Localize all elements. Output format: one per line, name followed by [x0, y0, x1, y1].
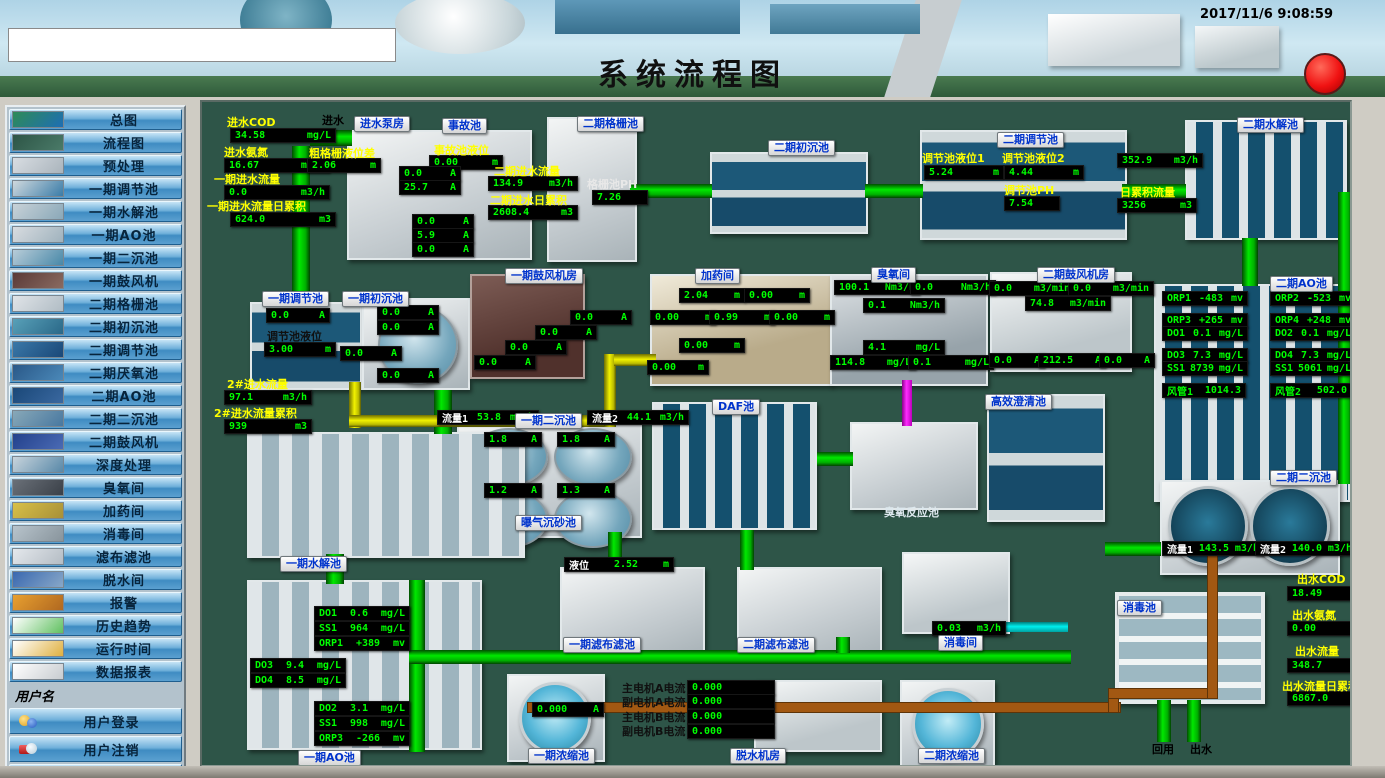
sidebar-item-thumbnail	[12, 525, 64, 542]
sidebar-item-20[interactable]: 滤布滤池	[9, 546, 182, 567]
sidebar-item-thumbnail	[12, 410, 64, 427]
value-display: 0.0A	[474, 355, 536, 370]
sidebar-item-label: 一期鼓风机	[67, 271, 181, 290]
sidebar-item-24[interactable]: 运行时间	[9, 638, 182, 659]
value-display: 0.0A	[570, 310, 632, 325]
value-display: 0.000	[687, 709, 775, 724]
value-display: 0.00m	[647, 360, 709, 375]
pipe-g	[865, 184, 923, 198]
metric-label: 2#进水流量	[227, 376, 288, 392]
metric-label: 一期进水流量日累积	[207, 198, 306, 214]
value-display: 0.0A	[377, 320, 439, 335]
unit-label-button[interactable]: 一期初沉池	[342, 291, 409, 307]
sidebar-item-label: 一期AO池	[67, 225, 181, 244]
value-display: 0.0m3/min	[1068, 281, 1154, 296]
value-display: 5.24m	[924, 165, 1004, 180]
sidebar-item-15[interactable]: 二期鼓风机	[9, 431, 182, 452]
sidebar-item-label: 加药间	[67, 501, 181, 520]
metric-label: 出水流量日累积	[1282, 678, 1352, 694]
text-label: 臭氧反应池	[884, 504, 939, 520]
unit-label-button[interactable]: 二期二沉池	[1270, 470, 1337, 486]
metric-label: 调节池PH	[1004, 182, 1054, 198]
value-display: 2.04m	[679, 288, 745, 303]
value-display: SS18739mg/L	[1162, 361, 1248, 376]
user-button-2[interactable]: 用户注销	[9, 736, 182, 762]
sidebar-item-17[interactable]: 臭氧间	[9, 477, 182, 498]
unit-label-button[interactable]: 臭氧间	[871, 267, 916, 283]
sidebar-item-label: 二期鼓风机	[67, 432, 181, 451]
sidebar-item-23[interactable]: 历史趋势	[9, 615, 182, 636]
value-display: 18.49mg/L	[1287, 586, 1352, 601]
unit-label-button[interactable]: 二期滤布滤池	[737, 637, 815, 653]
username-label: 用户名	[15, 686, 182, 705]
sidebar-item-3[interactable]: 预处理	[9, 155, 182, 176]
metric-label: 一期进水流量	[214, 171, 280, 187]
value-display: 风管11014.3	[1162, 383, 1246, 398]
value-display: 1.2A	[484, 483, 542, 498]
value-display: 212.5A	[1038, 353, 1106, 368]
metric-label: 粗格栅液位差	[309, 145, 375, 161]
value-display: DO39.4mg/L	[250, 658, 346, 673]
value-display: 0.00m	[769, 310, 835, 325]
sidebar-item-label: 历史趋势	[67, 616, 181, 635]
value-display: 4.44m	[1004, 165, 1084, 180]
equipment-building	[850, 422, 978, 510]
sidebar-item-25[interactable]: 数据报表	[9, 661, 182, 682]
sidebar-item-8[interactable]: 一期鼓风机	[9, 270, 182, 291]
sidebar-item-label: 报警	[67, 593, 181, 612]
pipe-o	[1108, 688, 1218, 699]
text-label: 调节池液位	[267, 328, 322, 344]
user-button-label: 用户注销	[42, 740, 181, 759]
unit-label-button[interactable]: 二期浓缩池	[918, 748, 985, 764]
sidebar-item-thumbnail	[12, 617, 64, 634]
value-display: 流量2140.0m3/h	[1255, 541, 1352, 556]
unit-label-button[interactable]: 二期调节池	[997, 132, 1064, 148]
sidebar-item-label: 数据报表	[67, 662, 181, 681]
text-label: 副电机B电流	[622, 723, 685, 739]
pipe-g	[836, 637, 850, 653]
value-display: 5.9A	[412, 228, 474, 243]
sidebar-item-thumbnail	[12, 594, 64, 611]
banner-building	[1048, 14, 1180, 66]
text-label: 出水	[1190, 741, 1212, 757]
metric-label: 调节池液位1	[922, 150, 985, 166]
value-display: 352.9m3/h	[1117, 153, 1203, 168]
sidebar-item-thumbnail	[12, 479, 64, 496]
value-display: SS1964mg/L	[314, 621, 410, 636]
value-display: 0.0Nm3/h	[910, 280, 996, 295]
value-display: 风管2502.0	[1270, 383, 1352, 398]
value-display: 0.99m	[709, 310, 775, 325]
metric-label: 日累积流量	[1120, 184, 1175, 200]
metric-label: 出水COD	[1297, 571, 1346, 587]
sidebar-item-19[interactable]: 消毒间	[9, 523, 182, 544]
sidebar-item-label: 二期二沉池	[67, 409, 181, 428]
sidebar-item-label: 二期厌氧池	[67, 363, 181, 382]
sidebar-item-thumbnail	[12, 663, 64, 680]
unit-label-button[interactable]: 一期滤布滤池	[563, 637, 641, 653]
pipe-o	[1207, 554, 1218, 699]
value-display: SS15061mg/L	[1270, 361, 1352, 376]
metric-label: 事故池液位	[434, 142, 489, 158]
sidebar-item-label: 二期调节池	[67, 340, 181, 359]
sidebar-item-label: 总图	[67, 110, 181, 129]
metric-label: 出水流量	[1295, 643, 1339, 659]
pipe-g	[1157, 700, 1171, 742]
value-display: 0.000	[687, 680, 775, 695]
metric-label: 2#进水流量累积	[214, 405, 297, 421]
value-display: 流量1143.5m3/h	[1162, 541, 1264, 556]
pipe-m	[902, 380, 912, 426]
value-display: 1.3A	[557, 483, 615, 498]
sidebar-item-thumbnail	[12, 433, 64, 450]
pipe-g	[409, 580, 425, 752]
value-display: 74.8m3/min	[1025, 296, 1111, 311]
value-display: 0.00m	[679, 338, 745, 353]
value-display: 97.1m3/h	[224, 390, 312, 405]
value-display: 0.0A	[399, 166, 461, 181]
value-display: DO48.5mg/L	[250, 673, 346, 688]
value-display: DO10.6mg/L	[314, 606, 410, 621]
value-display: ORP2-523mv	[1270, 291, 1352, 306]
sidebar-item-1[interactable]: 总图	[9, 109, 182, 130]
marquee-box	[8, 28, 396, 62]
sidebar-item-thumbnail	[12, 249, 64, 266]
sidebar-item-label: 脱水间	[67, 570, 181, 589]
unit-label-button[interactable]: 消毒池	[1117, 600, 1162, 616]
sidebar-item-thumbnail	[12, 295, 64, 312]
metric-label: 出水氨氮	[1292, 607, 1336, 623]
sidebar-item-label: 流程图	[67, 133, 181, 152]
pipe-g	[1105, 542, 1161, 556]
sidebar-item-11[interactable]: 二期调节池	[9, 339, 182, 360]
value-display: 0.000A	[532, 702, 604, 717]
value-display: 0.1mg/L	[908, 355, 994, 370]
unit-label-button[interactable]: 二期格栅池	[577, 116, 644, 132]
sidebar-item-label: 一期水解池	[67, 202, 181, 221]
user-button-1[interactable]: 用户登录	[9, 708, 182, 734]
sidebar-item-22[interactable]: 报警	[9, 592, 182, 613]
value-display: 0.03m3/h	[932, 621, 1006, 636]
unit-label-button[interactable]: 二期水解池	[1237, 117, 1304, 133]
value-display: 0.0A	[340, 346, 402, 361]
sidebar-item-label: 二期初沉池	[67, 317, 181, 336]
unit-label-button[interactable]: 曝气沉砂池	[515, 515, 582, 531]
value-display: 0.00mg/L	[1287, 621, 1352, 636]
unit-label-button[interactable]: 二期AO池	[1270, 276, 1333, 292]
banner-building	[1195, 26, 1279, 68]
value-display: DO20.1mg/L	[1270, 326, 1352, 341]
value-display: ORP1-483mv	[1162, 291, 1248, 306]
sidebar-item-thumbnail	[12, 548, 64, 565]
sidebar-item-thumbnail	[12, 157, 64, 174]
equipment-pool	[710, 152, 868, 234]
text-label: 副电机A电流	[622, 694, 686, 710]
sidebar-item-10[interactable]: 二期初沉池	[9, 316, 182, 337]
value-display: SS1998mg/L	[314, 716, 410, 731]
unit-label-button[interactable]: 脱水机房	[730, 748, 786, 764]
sidebar-item-thumbnail	[12, 456, 64, 473]
value-display: 0.00m	[744, 288, 810, 303]
value-display: 4.1mg/L	[863, 340, 945, 355]
value-display: ORP1+389mv	[314, 636, 410, 651]
unit-label-button[interactable]: 高效澄清池	[985, 394, 1052, 410]
user-login-icon	[18, 713, 38, 729]
scada-window: 系统流程图 2017/11/6 9:08:59 总图流程图预处理一期调节池一期水…	[0, 0, 1385, 778]
pipe-o	[527, 702, 1121, 713]
value-display: 1.8A	[557, 432, 615, 447]
value-display: 0.0A	[989, 353, 1045, 368]
sidebar-item-16[interactable]: 深度处理	[9, 454, 182, 475]
sidebar-item-12[interactable]: 二期厌氧池	[9, 362, 182, 383]
value-display: 114.8mg/L	[830, 355, 916, 370]
value-display: 0.000	[687, 694, 775, 709]
value-display: 624.0m3	[230, 212, 336, 227]
sidebar-item-thumbnail	[12, 272, 64, 289]
sidebar-item-thumbnail	[12, 226, 64, 243]
metric-label: 二期进水流量	[494, 163, 560, 179]
equipment-pool	[987, 394, 1105, 522]
equipment-lanes	[1185, 120, 1347, 240]
pipe-g	[1187, 700, 1201, 742]
unit-label-button[interactable]: 二期初沉池	[768, 140, 835, 156]
unit-label-button[interactable]: 一期水解池	[280, 556, 347, 572]
unit-label-button[interactable]: DAF池	[712, 399, 760, 415]
pipe-g	[740, 530, 754, 570]
sidebar-item-label: 二期格栅池	[67, 294, 181, 313]
sidebar-item-21[interactable]: 脱水间	[9, 569, 182, 590]
text-label: 回用	[1152, 741, 1174, 757]
value-display: 0.0A	[377, 305, 439, 320]
sidebar-item-label: 一期二沉池	[67, 248, 181, 267]
metric-label: 二期进水日累积	[490, 192, 567, 208]
sidebar: 总图流程图预处理一期调节池一期水解池一期AO池一期二沉池一期鼓风机二期格栅池二期…	[5, 105, 186, 773]
pipe-g	[817, 452, 853, 466]
sidebar-item-label: 臭氧间	[67, 478, 181, 497]
unit-label-button[interactable]: 进水泵房	[354, 116, 410, 132]
metric-label: 进水氨氮	[224, 144, 268, 160]
sidebar-item-18[interactable]: 加药间	[9, 500, 182, 521]
value-display: 3256m3	[1117, 198, 1197, 213]
value-display: 液位2.52m	[564, 557, 674, 572]
unit-label-button[interactable]: 一期二沉池	[515, 413, 582, 429]
value-display: 0.0A	[1099, 353, 1155, 368]
value-display: ORP3-266mv	[314, 731, 410, 746]
unit-label-button[interactable]: 一期调节池	[262, 291, 329, 307]
sidebar-item-9[interactable]: 二期格栅池	[9, 293, 182, 314]
sidebar-item-thumbnail	[12, 134, 64, 151]
unit-label-button[interactable]: 一期浓缩池	[528, 748, 595, 764]
sidebar-item-6[interactable]: 一期AO池	[9, 224, 182, 245]
timestamp: 2017/11/6 9:08:59	[1200, 7, 1333, 22]
sidebar-item-label: 二期AO池	[67, 386, 181, 405]
text-label: 格栅池PH	[587, 176, 637, 192]
value-display: 0.0m3/min	[989, 281, 1075, 296]
banner-basin	[555, 0, 740, 34]
unit-label-button[interactable]: 一期AO池	[298, 750, 361, 766]
banner-photo: 系统流程图 2017/11/6 9:08:59	[0, 0, 1385, 97]
value-display: 0.0A	[412, 214, 474, 229]
text-label: 进水	[322, 112, 344, 128]
value-display: 0.0A	[266, 308, 330, 323]
pipe-g	[1242, 238, 1258, 286]
metric-label: 调节池液位2	[1002, 150, 1065, 166]
unit-label-button[interactable]: 事故池	[442, 118, 487, 134]
banner-tank	[395, 0, 525, 54]
value-display: 0.000	[687, 724, 775, 739]
sidebar-item-label: 滤布滤池	[67, 547, 181, 566]
page-title: 系统流程图	[598, 50, 788, 94]
user-logout-icon	[18, 741, 38, 757]
sidebar-nav: 总图流程图预处理一期调节池一期水解池一期AO池一期二沉池一期鼓风机二期格栅池二期…	[9, 109, 182, 682]
sidebar-item-thumbnail	[12, 111, 64, 128]
sidebar-item-13[interactable]: 二期AO池	[9, 385, 182, 406]
value-display: 0.0A	[505, 340, 567, 355]
unit-label-button[interactable]: 加药间	[695, 268, 740, 284]
sidebar-item-thumbnail	[12, 318, 64, 335]
value-display: DO23.1mg/L	[314, 701, 410, 716]
value-display: 0.00m	[650, 310, 716, 325]
sidebar-item-label: 深度处理	[67, 455, 181, 474]
value-display: 348.7m3/h	[1287, 658, 1352, 673]
sidebar-item-thumbnail	[12, 387, 64, 404]
sidebar-item-thumbnail	[12, 203, 64, 220]
sidebar-item-thumbnail	[12, 180, 64, 197]
sidebar-item-thumbnail	[12, 571, 64, 588]
flow-diagram-canvas: 34.58mg/L16.67mg/L0.0m3/h624.0m32.06m0.0…	[200, 100, 1352, 767]
value-display: 0.0A	[412, 242, 474, 257]
value-display: 流量244.1m3/h	[587, 410, 689, 425]
unit-label-button[interactable]: 一期鼓风机房	[505, 268, 583, 284]
sidebar-item-2[interactable]: 流程图	[9, 132, 182, 153]
value-display: DO10.1mg/L	[1162, 326, 1248, 341]
bottom-bar	[0, 766, 1385, 778]
sidebar-item-7[interactable]: 一期二沉池	[9, 247, 182, 268]
sidebar-item-thumbnail	[12, 640, 64, 657]
sidebar-item-4[interactable]: 一期调节池	[9, 178, 182, 199]
value-display: 939m3	[224, 419, 312, 434]
sidebar-item-14[interactable]: 二期二沉池	[9, 408, 182, 429]
value-display: 25.7A	[399, 180, 461, 195]
value-display: 0.0A	[535, 325, 597, 340]
alarm-indicator-light[interactable]	[1304, 53, 1346, 95]
equipment-circle-cyan	[519, 682, 591, 754]
sidebar-item-label: 一期调节池	[67, 179, 181, 198]
sidebar-item-label: 消毒间	[67, 524, 181, 543]
value-display: 0.1Nm3/h	[863, 298, 945, 313]
value-display: 3.00m	[264, 342, 336, 357]
unit-label-button[interactable]: 消毒间	[938, 635, 983, 651]
banner-basin	[770, 4, 920, 34]
window-edge	[1352, 100, 1385, 766]
metric-label: 进水COD	[227, 114, 276, 130]
value-display: 7.54	[1004, 196, 1060, 211]
sidebar-item-5[interactable]: 一期水解池	[9, 201, 182, 222]
value-display: 7.26	[592, 190, 648, 205]
user-button-label: 用户登录	[42, 712, 181, 731]
value-display: 0.0A	[377, 368, 439, 383]
sidebar-item-label: 预处理	[67, 156, 181, 175]
value-display: 34.58mg/L	[230, 128, 336, 143]
sidebar-item-thumbnail	[12, 364, 64, 381]
sidebar-item-label: 运行时间	[67, 639, 181, 658]
sidebar-item-thumbnail	[12, 341, 64, 358]
unit-label-button[interactable]: 二期鼓风机房	[1037, 267, 1115, 283]
sidebar-item-thumbnail	[12, 502, 64, 519]
value-display: 1.8A	[484, 432, 542, 447]
